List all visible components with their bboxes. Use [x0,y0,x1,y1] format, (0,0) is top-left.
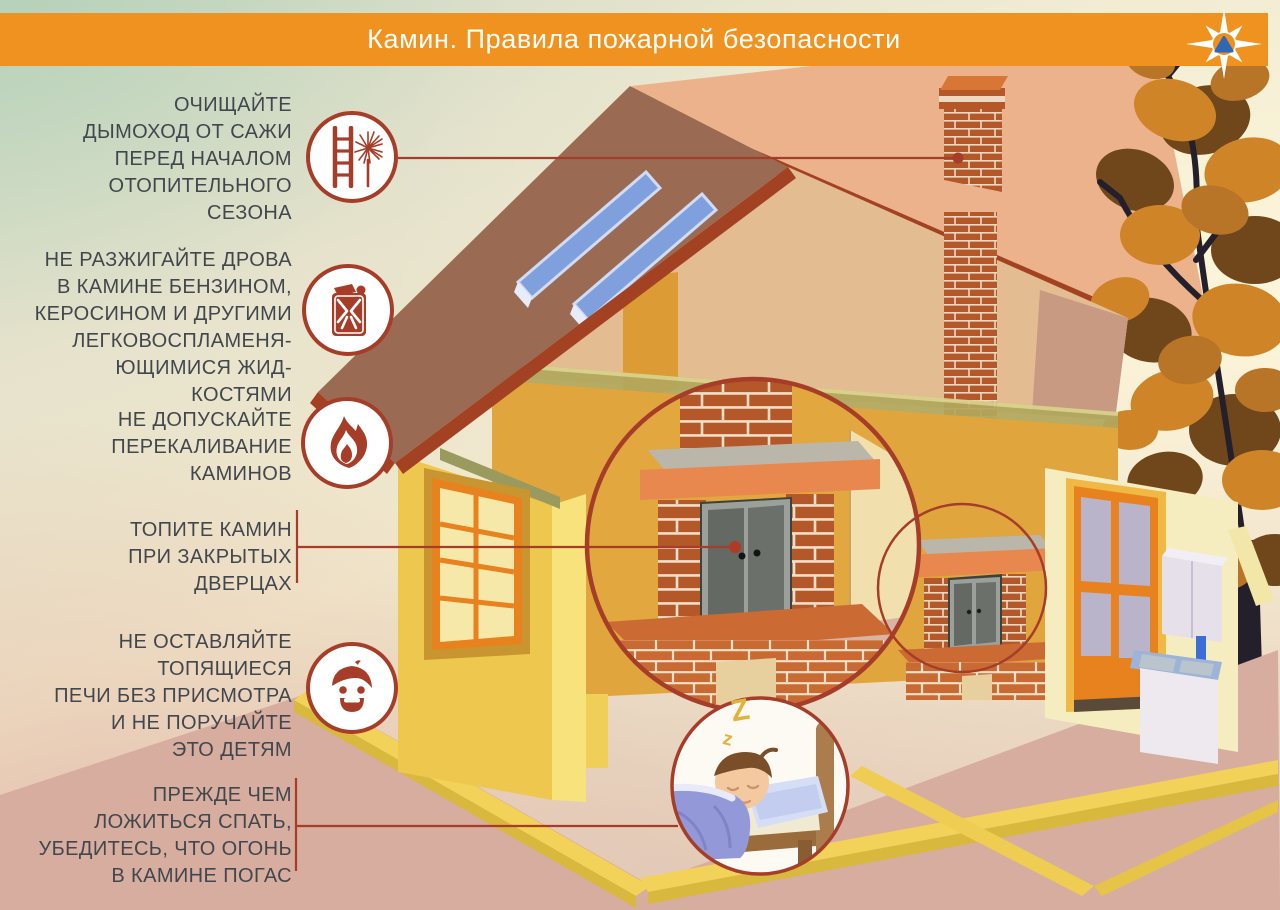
wall-cabinet [1162,548,1228,642]
rule-no-overheating: НЕ ДОПУСКАЙТЕ ПЕРЕКАЛИВАНИЕ КАМИНОВ [0,407,292,488]
poster-title: Камин. Правила пожарной безопасности [367,24,901,55]
chimney-top [939,76,1008,192]
rule-clean-chimney: ОЧИЩАЙТЕ ДЫМОХОД ОТ САЖИ ПЕРЕД НАЧАЛОМ О… [0,92,292,227]
rule-no-unattended: НЕ ОСТАВЛЯЙТЕ ТОПЯЩИЕСЯ ПЕЧИ БЕЗ ПРИСМОТ… [0,629,292,764]
window [424,468,530,660]
mchs-star-emblem [1178,5,1270,83]
fireplace-closeup-circle [587,379,919,711]
left-wall [398,448,586,802]
chimney-brush-ladder-icon [306,111,398,203]
flame-icon [301,397,393,489]
child-face-icon [306,642,398,734]
rule-no-flammable-liquids: НЕ РАЗЖИГАЙТЕ ДРОВА В КАМИНЕ БЕНЗИНОМ, К… [0,247,292,409]
rule-check-before-sleep: ПРЕЖДЕ ЧЕМ ЛОЖИТЬСЯ СПАТЬ, УБЕДИТЕСЬ, ЧТ… [0,782,292,890]
title-banner: Камин. Правила пожарной безопасности [0,13,1268,66]
rule-closed-doors: ТОПИТЕ КАМИН ПРИ ЗАКРЫТЫХ ДВЕРЦАХ [0,517,292,598]
fire-safety-poster: Камин. Правила пожарной безопасности ОЧИ… [0,0,1280,910]
fuel-can-icon [302,264,394,356]
